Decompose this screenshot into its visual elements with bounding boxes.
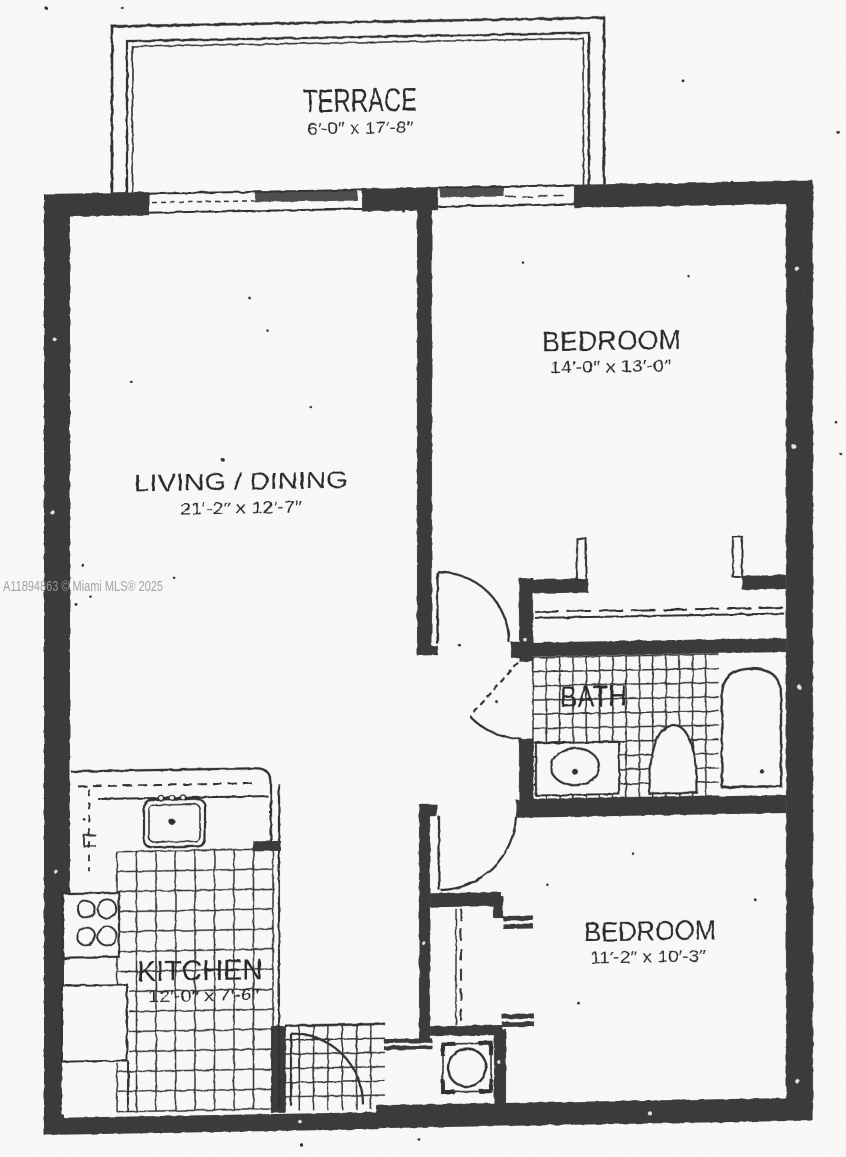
svg-text:A11894863 © Miami MLS® 2025: A11894863 © Miami MLS® 2025 — [3, 579, 163, 595]
